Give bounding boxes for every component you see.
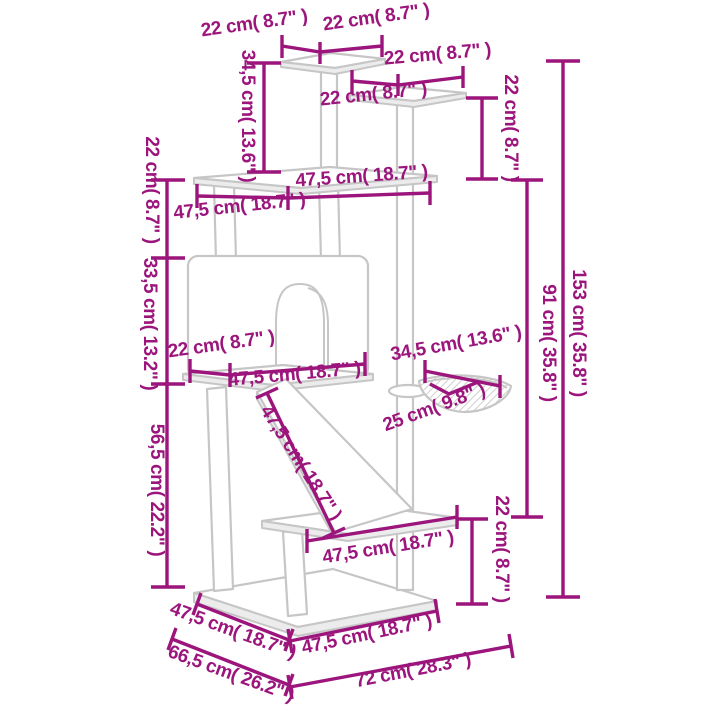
dim-label-h153: 153 cm( 35.8" ) (568, 269, 589, 397)
dim-label-left-22: 22 cm( 8.7" ) (141, 136, 162, 243)
dim-label-base-72: 72 cm( 28.3" ) (353, 649, 472, 692)
post-under-house (207, 387, 233, 591)
dim-label-left-565: 56,5 cm( 22.2" ) (146, 424, 167, 557)
dim-label-drop-345: 34,5 cm( 13.6" ) (237, 50, 258, 183)
dim-label-left-335: 33,5 cm( 13.2" ) (139, 258, 160, 391)
cat-tree-diagram-svg: 22 cm( 8.7" ) 22 cm( 8.7" ) 22 cm( 8.7" … (0, 0, 720, 720)
dim-label-platform-left: 47,5 cm( 18.7" ) (172, 189, 306, 224)
dim-label-lower-22: 22 cm( 8.7" ) (491, 495, 512, 602)
dim-label-top2-right: 22 cm( 8.7" ) (383, 39, 492, 69)
dim-lower-22 (456, 519, 488, 604)
dim-right-post-22 (466, 98, 498, 179)
dim-label-top1-right: 22 cm( 8.7" ) (322, 0, 431, 35)
dim-label-h91: 91 cm( 35.8" ) (538, 284, 559, 402)
dimension-diagram: 22 cm( 8.7" ) 22 cm( 8.7" ) 22 cm( 8.7" … (0, 0, 720, 720)
dim-label-top1-left: 22 cm( 8.7" ) (200, 6, 309, 42)
dim-label-right-post: 22 cm( 8.7" ) (500, 74, 521, 181)
post-under-mid-platform (283, 530, 307, 616)
top-post (321, 60, 337, 180)
